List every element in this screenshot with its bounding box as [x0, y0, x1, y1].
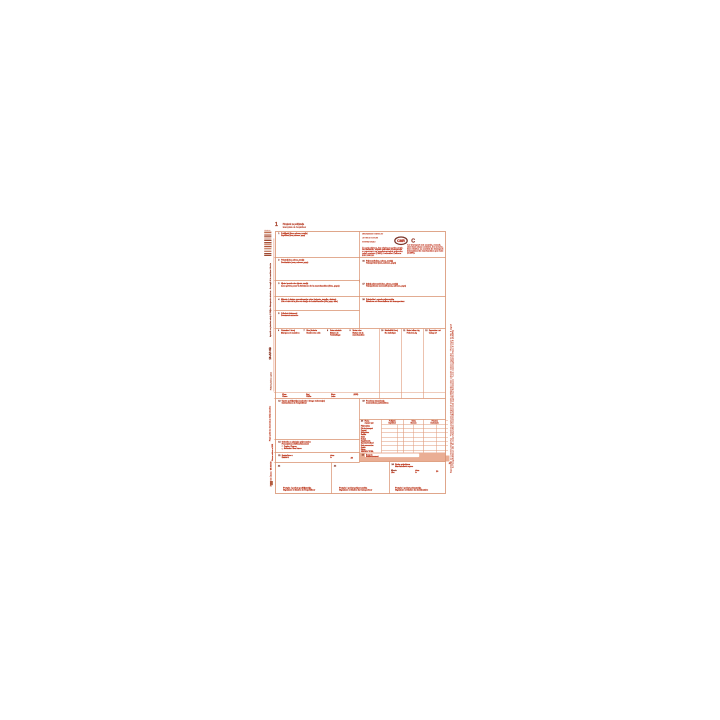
- svg-text:marchandise: marchandise: [353, 334, 365, 336]
- svg-text:Pouzeće: Pouzeće: [366, 454, 373, 456]
- svg-text:Broj: Broj: [306, 394, 310, 396]
- svg-text:Classe: Classe: [282, 396, 287, 398]
- svg-text:3 2 0 4 0 6 0 5: 3 2 0 4 0 6 0 5: [271, 240, 273, 248]
- svg-text:Signature et timbre du transpo: Signature et timbre du transporteur: [339, 489, 372, 492]
- svg-text:CMR: CMR: [397, 239, 405, 243]
- svg-text:Exemplaire de l'expéditeur: Exemplaire de l'expéditeur: [283, 225, 307, 229]
- svg-text:Nefranko / Non franco: Nefranko / Non franco: [284, 448, 302, 450]
- svg-text:Nombre des colis: Nombre des colis: [307, 332, 321, 334]
- svg-text:Etablie à: Etablie à: [282, 456, 289, 459]
- svg-text:Lieu et date de la prise en ch: Lieu et date de la prise en charge de la…: [281, 300, 338, 303]
- svg-text:Marchandises reçues: Marchandises reçues: [395, 466, 413, 468]
- svg-text:Klasa: Klasa: [282, 394, 286, 396]
- svg-text:J7: J7: [449, 463, 451, 465]
- svg-text:Dodaci: Dodaci: [361, 438, 367, 440]
- svg-text:EUR 2006/126.: EUR 2006/126.: [362, 255, 375, 257]
- svg-text:Chiffre: Chiffre: [306, 396, 311, 398]
- svg-text:Documents annexés: Documents annexés: [281, 314, 298, 317]
- svg-text:16-AP-0B: 16-AP-0B: [268, 347, 272, 359]
- svg-text:Razlika: Razlika: [361, 434, 366, 436]
- svg-text:Monnaie: Monnaie: [411, 423, 417, 425]
- svg-text:Transporteurs successifs (nom,: Transporteurs successifs (nom, adresse, …: [366, 285, 406, 288]
- svg-text:Transporteur (nom, adresse, pa: Transporteur (nom, adresse, pays): [366, 262, 396, 265]
- svg-text:(CMR).: (CMR).: [407, 253, 416, 255]
- svg-text:Lieu prévu pour la livraison d: Lieu prévu pour la livraison de la march…: [281, 285, 340, 287]
- svg-text:Solde: Solde: [361, 436, 365, 438]
- svg-text:Plaća:: Plaća:: [365, 421, 370, 423]
- svg-text:Réserves et observations du tr: Réserves et observations du transporteur: [366, 300, 405, 303]
- svg-text:Expéditeur (nom, adresse, pays: Expéditeur (nom, adresse, pays): [281, 234, 305, 237]
- svg-text:C: C: [411, 239, 415, 245]
- svg-text:Signature et timbre de l'expéd: Signature et timbre de l'expéditeur: [283, 489, 315, 492]
- svg-text:MEĐUNARODNI TOVARNI LIST: MEĐUNARODNI TOVARNI LIST: [362, 233, 383, 236]
- svg-text:0 406306 30: 0 406306 30: [264, 230, 271, 232]
- svg-text:le: le: [330, 457, 331, 459]
- svg-text:l'emballage: l'emballage: [330, 334, 341, 336]
- svg-text:LETTRE DE VOITURE: LETTRE DE VOITURE: [362, 238, 378, 240]
- svg-text:le: le: [415, 472, 416, 474]
- svg-text:Signature et timbre du destina: Signature et timbre du destinataire: [395, 489, 428, 492]
- svg-text:INTERNATIONALE: INTERNATIONALE: [362, 241, 376, 244]
- svg-text:Instructions de l'expéditeur: Instructions de l'expéditeur: [282, 402, 307, 405]
- svg-text:Lieu: Lieu: [391, 472, 394, 474]
- svg-text:Destinataire (nom, adresse, pa: Destinataire (nom, adresse, pays): [281, 261, 308, 264]
- svg-text:Slovo: Slovo: [331, 394, 335, 396]
- svg-text:Oznake i broj: Oznake i broj: [281, 330, 296, 332]
- svg-text:Conventions particulières: Conventions particulières: [366, 402, 389, 405]
